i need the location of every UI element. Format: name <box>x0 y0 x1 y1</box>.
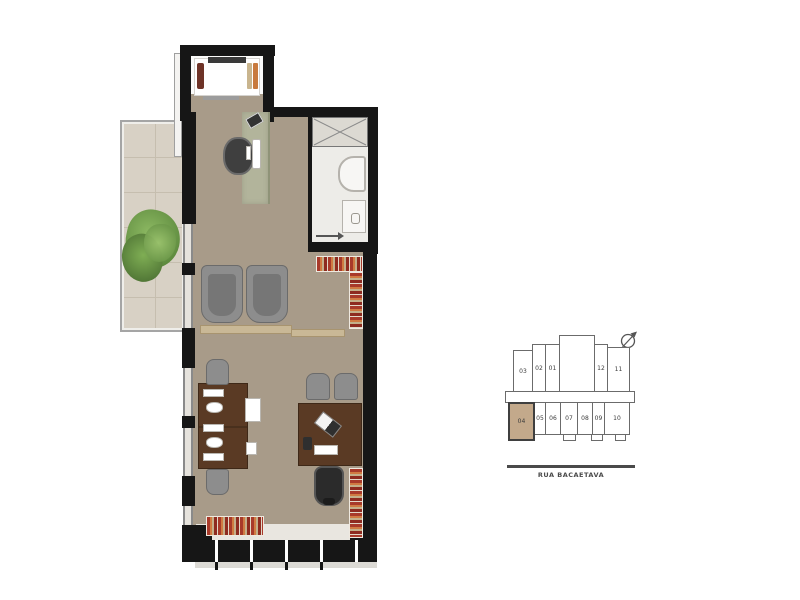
unit-label: 07 <box>565 415 573 422</box>
closet-shaft <box>312 117 368 147</box>
unit-label: 01 <box>549 365 557 372</box>
wall-bath-top <box>270 107 378 117</box>
arrow-head <box>338 232 344 240</box>
bed-pillow-left <box>197 63 204 89</box>
armchair-2 <box>246 265 288 323</box>
monitor <box>252 139 261 169</box>
keyplan-unit-11: 11 <box>607 347 630 392</box>
street-line <box>507 465 635 468</box>
wall-bath-right <box>368 107 378 254</box>
unit-label: 12 <box>597 365 605 372</box>
task-chair-bottom <box>206 469 229 495</box>
paper-tray <box>203 453 224 461</box>
wall-left-seg3 <box>182 416 195 428</box>
unit-label: 11 <box>615 366 623 373</box>
keyplan-unit-02: 02 <box>532 344 546 392</box>
mullion-tick <box>320 562 323 570</box>
vanity-sink <box>342 200 366 233</box>
wall-entry-left <box>180 45 191 121</box>
keyplan-core <box>559 335 595 392</box>
floorplan-page: 03 02 01 12 11 04 05 06 07 08 09 10 RUA … <box>0 0 800 600</box>
unit-label: 05 <box>536 415 544 422</box>
armchair-seat <box>208 274 236 316</box>
street-label: RUA BACAETAVA <box>501 471 641 479</box>
task-chair-top <box>206 359 229 385</box>
unit-label: 02 <box>535 365 543 372</box>
monitor-2 <box>206 437 223 448</box>
closet-x-mark <box>313 118 367 146</box>
window-mullion <box>320 540 323 562</box>
armchair-1 <box>201 265 243 323</box>
bed-headboard <box>208 57 246 63</box>
window-left-4 <box>183 428 193 476</box>
printer <box>245 398 261 422</box>
keyplan-unit-03: 03 <box>513 350 533 392</box>
wall-bath-left <box>308 117 312 248</box>
window-mullion <box>250 540 253 562</box>
bookshelf-right <box>349 468 363 538</box>
keyplan-notch <box>563 434 576 441</box>
keyboard-2 <box>203 424 224 432</box>
keyplan-unit-07: 07 <box>560 402 578 435</box>
wall-right-lower <box>363 242 377 545</box>
keyplan-notch <box>591 434 603 441</box>
wall-left-seg1 <box>182 263 195 275</box>
desk-cabinet <box>246 442 257 455</box>
keyboard-1 <box>203 389 224 397</box>
floor-plan <box>120 38 400 573</box>
sink-bowl <box>351 213 360 224</box>
bench <box>203 96 239 100</box>
bed-pillow-right-1 <box>247 63 252 89</box>
armchair-seat <box>253 274 281 316</box>
unit-label: 06 <box>549 415 557 422</box>
guest-chair-1 <box>306 373 330 400</box>
wall-left-seg4 <box>182 476 195 506</box>
keyplan-unit-04-highlighted: 04 <box>508 402 535 441</box>
unit-label: 04 <box>518 418 526 425</box>
key-plan: 03 02 01 12 11 04 05 06 07 08 09 10 RUA … <box>503 330 653 490</box>
unit-label: 03 <box>519 368 527 375</box>
monitor-1 <box>206 402 223 413</box>
desk-phone <box>303 437 312 450</box>
keyplan-unit-12: 12 <box>594 344 608 392</box>
keyplan-unit-06: 06 <box>545 402 561 435</box>
wall-top <box>180 45 275 56</box>
window-left-2 <box>183 275 193 328</box>
shower <box>338 156 366 192</box>
unit-label: 10 <box>613 415 621 422</box>
mullion-tick <box>250 562 253 570</box>
wall-left-upper <box>182 112 196 224</box>
paper-sheet <box>314 445 338 455</box>
keyboard <box>246 146 251 160</box>
window-mullion <box>285 540 288 562</box>
keyplan-unit-10: 10 <box>604 402 630 435</box>
unit-label: 09 <box>595 415 603 422</box>
door-swing-arrow <box>316 235 338 237</box>
headrest <box>323 498 335 505</box>
window-left-5 <box>183 506 193 525</box>
wood-shelf-1 <box>200 325 292 334</box>
bookshelf-bottom <box>206 516 264 536</box>
keyplan-unit-08: 08 <box>577 402 593 435</box>
unit-label: 08 <box>581 415 589 422</box>
wall-left-seg2 <box>182 328 195 368</box>
mullion-tick <box>285 562 288 570</box>
window-left-3 <box>183 368 193 416</box>
window-mullion <box>355 540 358 562</box>
executive-chair <box>314 466 344 506</box>
bed-pillow-right-2 <box>253 63 258 89</box>
mullion-tick <box>215 562 218 570</box>
wood-shelf-2 <box>291 329 345 337</box>
bookshelf-top-vertical <box>349 272 363 329</box>
guest-chair-2 <box>334 373 358 400</box>
window-left-1 <box>183 224 193 263</box>
bookshelf-top-horizontal <box>316 256 363 272</box>
keyplan-notch <box>615 434 626 441</box>
keyplan-unit-01: 01 <box>545 344 560 392</box>
window-mullion <box>215 540 218 562</box>
